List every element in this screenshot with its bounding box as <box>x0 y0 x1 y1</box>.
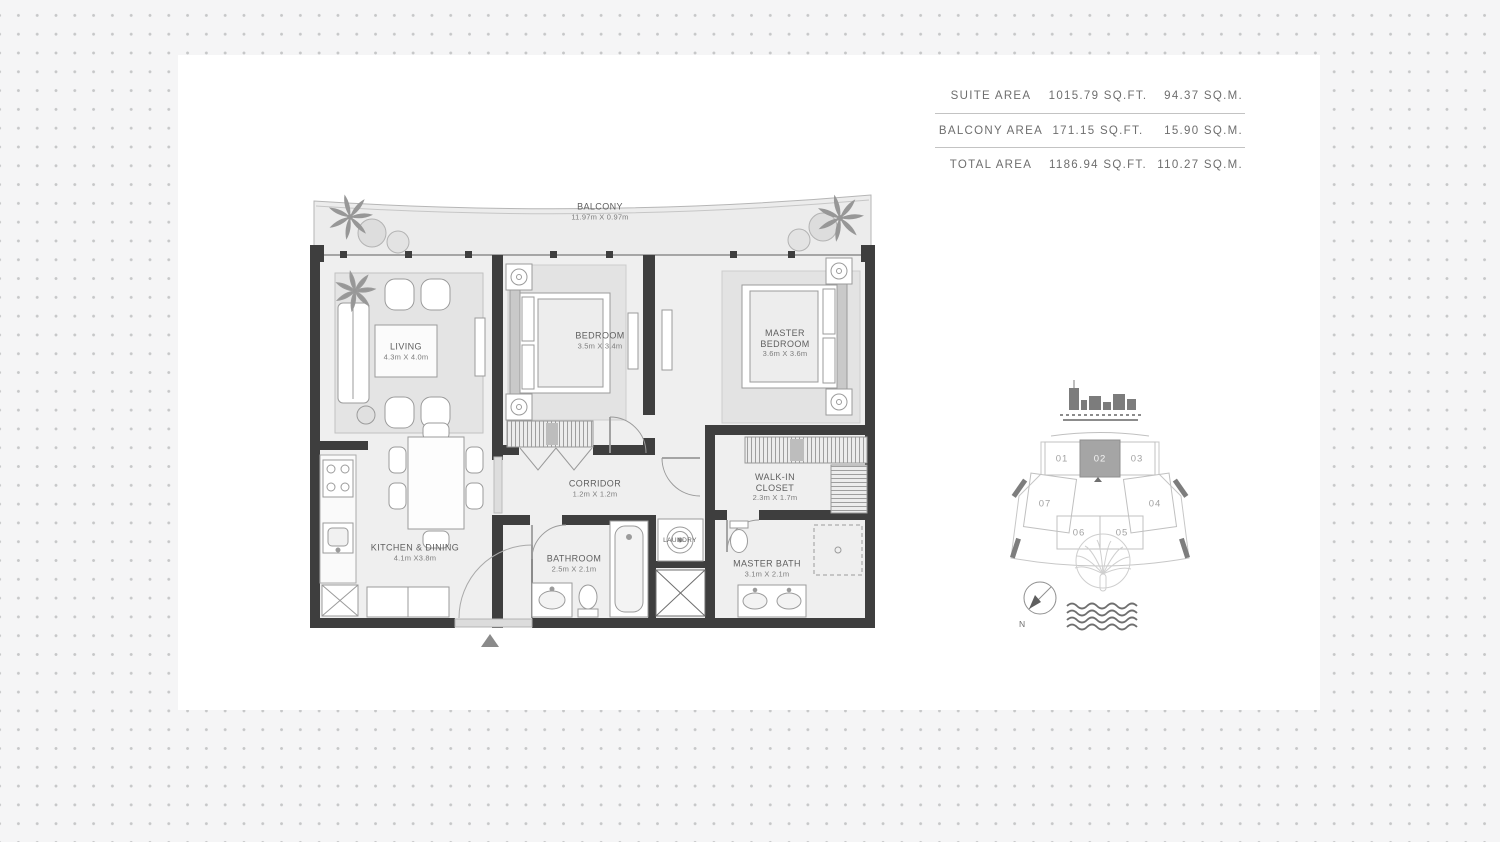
unit-label-03: 03 <box>1131 454 1144 465</box>
room-dims: 3.6m X 3.6m <box>754 349 816 358</box>
wardrobe-icon <box>831 465 867 513</box>
compass-north-label: N <box>1019 619 1025 629</box>
unit-label-02: 02 <box>1094 454 1107 465</box>
shaft-icon <box>656 570 705 616</box>
stove-icon <box>323 460 353 497</box>
table-row: BALCONY AREA 171.15 SQ.FT. 15.90 SQ.M. <box>935 113 1245 147</box>
room-label-walk-in-closet: WALK-IN CLOSET 2.3m X 1.7m <box>744 472 806 502</box>
side-table-icon <box>357 406 375 424</box>
room-name: LAUNDRY <box>663 536 697 547</box>
room-name: LIVING <box>384 341 429 352</box>
room-label-balcony: BALCONY 11.97m X 0.97m <box>571 201 628 221</box>
balcony-area-label: BALCONY AREA <box>935 125 1047 137</box>
room-label-master-bath: MASTER BATH 3.1m X 2.1m <box>733 558 801 578</box>
total-area-sqm: 110.27 SQ.M. <box>1149 159 1245 171</box>
room-label-corridor: CORRIDOR 1.2m X 1.2m <box>569 478 621 498</box>
room-label-kitchen-dining: KITCHEN & DINING 4.1m X3.8m <box>371 542 459 562</box>
unit-label-04: 04 <box>1149 499 1162 510</box>
sink-icon <box>532 583 572 617</box>
nightstand-icon <box>826 258 852 284</box>
room-dims: 4.1m X3.8m <box>371 553 459 562</box>
toilet-icon <box>730 521 748 553</box>
sink-icon <box>323 523 353 553</box>
room-name: MASTER BEDROOM <box>754 328 816 349</box>
floor-plan: BALCONY 11.97m X 0.97m LIVING 4.3m X 4.0… <box>310 185 875 655</box>
key-plan-drawing <box>1005 378 1195 643</box>
room-name: BATHROOM <box>547 553 602 564</box>
console-icon <box>662 310 672 370</box>
room-dims: 4.3m X 4.0m <box>384 352 429 361</box>
skyline-icon <box>1060 380 1141 420</box>
room-name: WALK-IN CLOSET <box>744 472 806 493</box>
room-label-living: LIVING 4.3m X 4.0m <box>384 341 429 361</box>
room-name: BEDROOM <box>575 330 624 341</box>
balcony-area-sqft: 171.15 SQ.FT. <box>1047 125 1149 137</box>
room-name: KITCHEN & DINING <box>371 542 459 553</box>
room-name: MASTER BATH <box>733 558 801 569</box>
toilet-icon <box>578 585 598 617</box>
unit-label-07: 07 <box>1039 499 1052 510</box>
room-dims: 2.3m X 1.7m <box>744 493 806 502</box>
suite-area-sqft: 1015.79 SQ.FT. <box>1047 90 1149 102</box>
room-label-bedroom: BEDROOM 3.5m X 3.4m <box>575 330 624 350</box>
double-sink-icon <box>738 585 806 617</box>
armchair-icon <box>421 279 450 310</box>
suite-area-sqm: 94.37 SQ.M. <box>1149 90 1245 102</box>
waves-icon <box>1067 604 1137 630</box>
room-dims: 3.5m X 3.4m <box>575 341 624 350</box>
wardrobe-icon <box>745 437 867 463</box>
duct-icon <box>322 585 358 616</box>
key-plan: 01 02 03 04 05 06 07 N <box>1005 378 1195 643</box>
bathtub-icon <box>610 521 648 617</box>
compass-icon <box>1024 582 1056 614</box>
entry-arrow-icon <box>481 634 499 647</box>
room-dims: 1.2m X 1.2m <box>569 489 621 498</box>
unit-label-06: 06 <box>1073 528 1086 539</box>
balcony-area-sqm: 15.90 SQ.M. <box>1149 125 1245 137</box>
room-label-bathroom: BATHROOM 2.5m X 2.1m <box>547 553 602 573</box>
unit-label-01: 01 <box>1056 454 1069 465</box>
nightstand-icon <box>506 264 532 290</box>
unit-label-05: 05 <box>1116 528 1129 539</box>
nightstand-icon <box>826 389 852 415</box>
armchair-icon <box>385 279 414 310</box>
page: { "area_table": { "rows": [ { "label": "… <box>0 0 1500 842</box>
room-label-laundry: LAUNDRY <box>663 536 697 547</box>
unit-marker-icon <box>1094 477 1102 482</box>
floor-plan-drawing <box>310 185 875 655</box>
suite-area-label: SUITE AREA <box>935 90 1047 102</box>
room-dims: 3.1m X 2.1m <box>733 569 801 578</box>
room-dims: 11.97m X 0.97m <box>571 212 628 221</box>
console-icon <box>475 318 485 376</box>
room-label-master-bedroom: MASTER BEDROOM 3.6m X 3.6m <box>754 328 816 358</box>
table-row: TOTAL AREA 1186.94 SQ.FT. 110.27 SQ.M. <box>935 147 1245 181</box>
bedroom-furniture <box>506 264 638 447</box>
palm-island-icon <box>1075 534 1131 591</box>
total-area-sqft: 1186.94 SQ.FT. <box>1047 159 1149 171</box>
area-table: SUITE AREA 1015.79 SQ.FT. 94.37 SQ.M. BA… <box>935 79 1245 181</box>
nightstand-icon <box>506 394 532 420</box>
room-dims: 2.5m X 2.1m <box>547 564 602 573</box>
table-row: SUITE AREA 1015.79 SQ.FT. 94.37 SQ.M. <box>935 79 1245 113</box>
total-area-label: TOTAL AREA <box>935 159 1047 171</box>
armchair-icon <box>385 397 414 428</box>
console-icon <box>628 313 638 369</box>
room-name: CORRIDOR <box>569 478 621 489</box>
room-name: BALCONY <box>571 201 628 212</box>
